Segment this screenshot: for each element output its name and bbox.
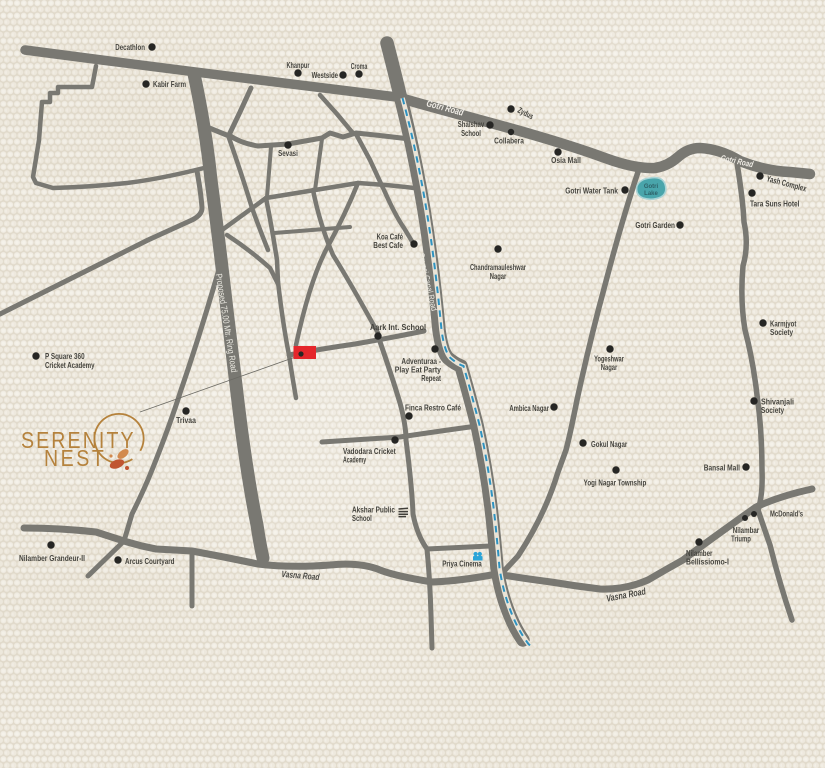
- svg-text:Best Cafe: Best Cafe: [373, 240, 403, 250]
- svg-text:Sevasi: Sevasi: [278, 148, 298, 158]
- svg-text:Lake: Lake: [644, 191, 658, 197]
- svg-text:Nilamber Grandeur-II: Nilamber Grandeur-II: [19, 553, 85, 563]
- svg-text:Trivaa: Trivaa: [176, 415, 196, 425]
- svg-text:Westside: Westside: [312, 70, 339, 80]
- svg-text:Nagar: Nagar: [601, 362, 618, 372]
- svg-text:McDonald’s: McDonald’s: [770, 509, 803, 519]
- svg-text:Osia Mall: Osia Mall: [551, 155, 581, 165]
- svg-text:Bansal Mall: Bansal Mall: [704, 463, 740, 473]
- svg-text:Khanpur: Khanpur: [286, 60, 310, 70]
- svg-text:Kabir Farm: Kabir Farm: [153, 79, 186, 89]
- svg-text:Gotri Water Tank: Gotri Water Tank: [565, 186, 618, 196]
- svg-text:Triump: Triump: [731, 534, 751, 544]
- svg-text:NEST: NEST: [44, 446, 106, 472]
- svg-text:School: School: [461, 128, 481, 138]
- svg-text:Tara Suns Hotel: Tara Suns Hotel: [750, 199, 800, 209]
- svg-text:Society: Society: [761, 405, 784, 415]
- svg-text:Society: Society: [770, 327, 793, 337]
- svg-text:Gokul Nagar: Gokul Nagar: [591, 439, 628, 449]
- svg-text:Croma: Croma: [351, 61, 368, 71]
- svg-text:Nagar: Nagar: [490, 271, 507, 281]
- svg-text:Decathlon: Decathlon: [115, 42, 145, 52]
- svg-text:Bellissiomo-I: Bellissiomo-I: [686, 557, 729, 567]
- svg-text:Finca Restro Café: Finca Restro Café: [405, 403, 461, 413]
- svg-text:Academy: Academy: [343, 455, 366, 465]
- svg-text:Repeat: Repeat: [421, 373, 441, 383]
- svg-text:Priya Cinema: Priya Cinema: [442, 559, 482, 569]
- svg-text:Arcus Courtyard: Arcus Courtyard: [125, 556, 175, 566]
- svg-text:Gotri: Gotri: [644, 184, 659, 190]
- svg-text:Yogi Nagar Township: Yogi Nagar Township: [584, 478, 647, 488]
- svg-text:Aark Int. School: Aark Int. School: [370, 322, 426, 332]
- svg-text:Collabera: Collabera: [494, 136, 524, 146]
- svg-text:School: School: [352, 513, 372, 523]
- svg-text:Cricket Academy: Cricket Academy: [45, 360, 95, 370]
- svg-text:Gotri Garden: Gotri Garden: [635, 220, 675, 230]
- svg-text:Ambica Nagar: Ambica Nagar: [509, 403, 549, 413]
